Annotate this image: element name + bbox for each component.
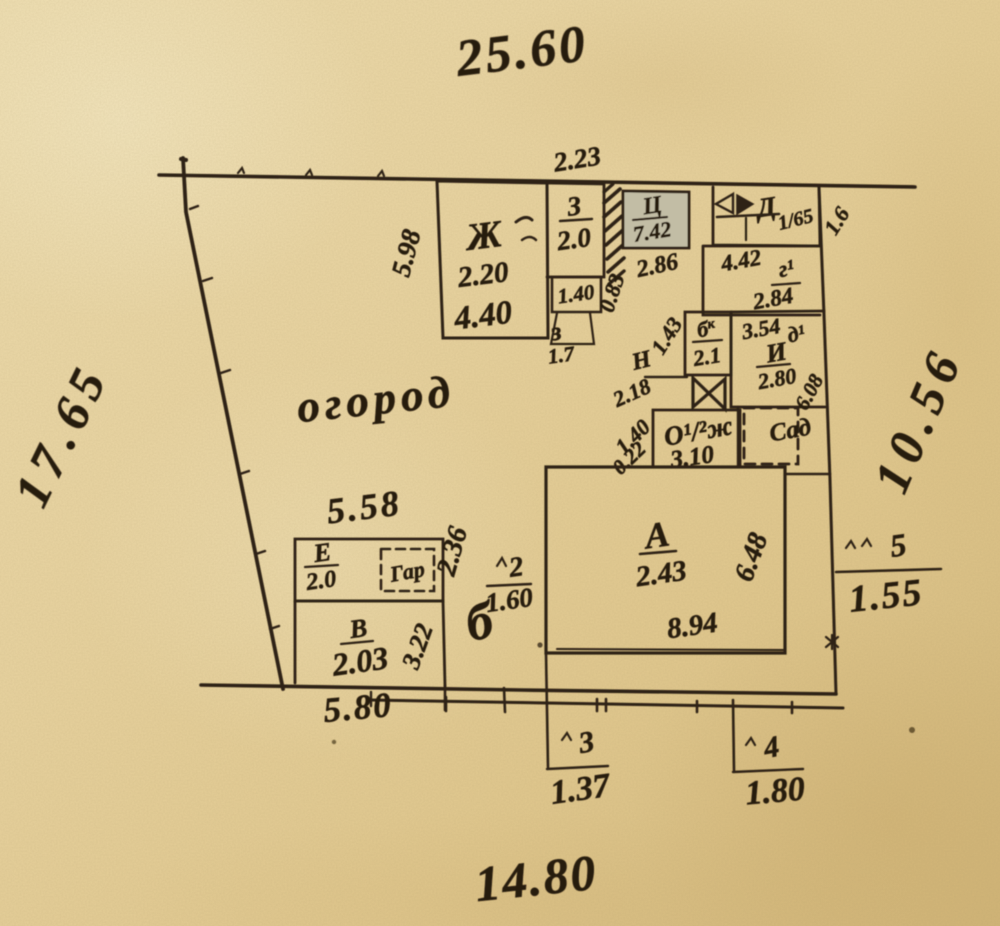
svg-text:1.7: 1.7: [546, 341, 577, 369]
svg-text:2.0: 2.0: [554, 222, 593, 257]
svg-text:5.80: 5.80: [322, 685, 394, 730]
svg-text:2.1: 2.1: [691, 342, 723, 371]
svg-text:1.55: 1.55: [847, 571, 925, 621]
svg-text:4.40: 4.40: [451, 295, 514, 338]
svg-text:1.80: 1.80: [744, 770, 806, 812]
svg-text:2.0: 2.0: [304, 566, 338, 596]
svg-text:2.20: 2.20: [455, 256, 510, 294]
svg-text:Ж: Ж: [461, 213, 505, 259]
svg-text:1.40: 1.40: [556, 279, 596, 308]
